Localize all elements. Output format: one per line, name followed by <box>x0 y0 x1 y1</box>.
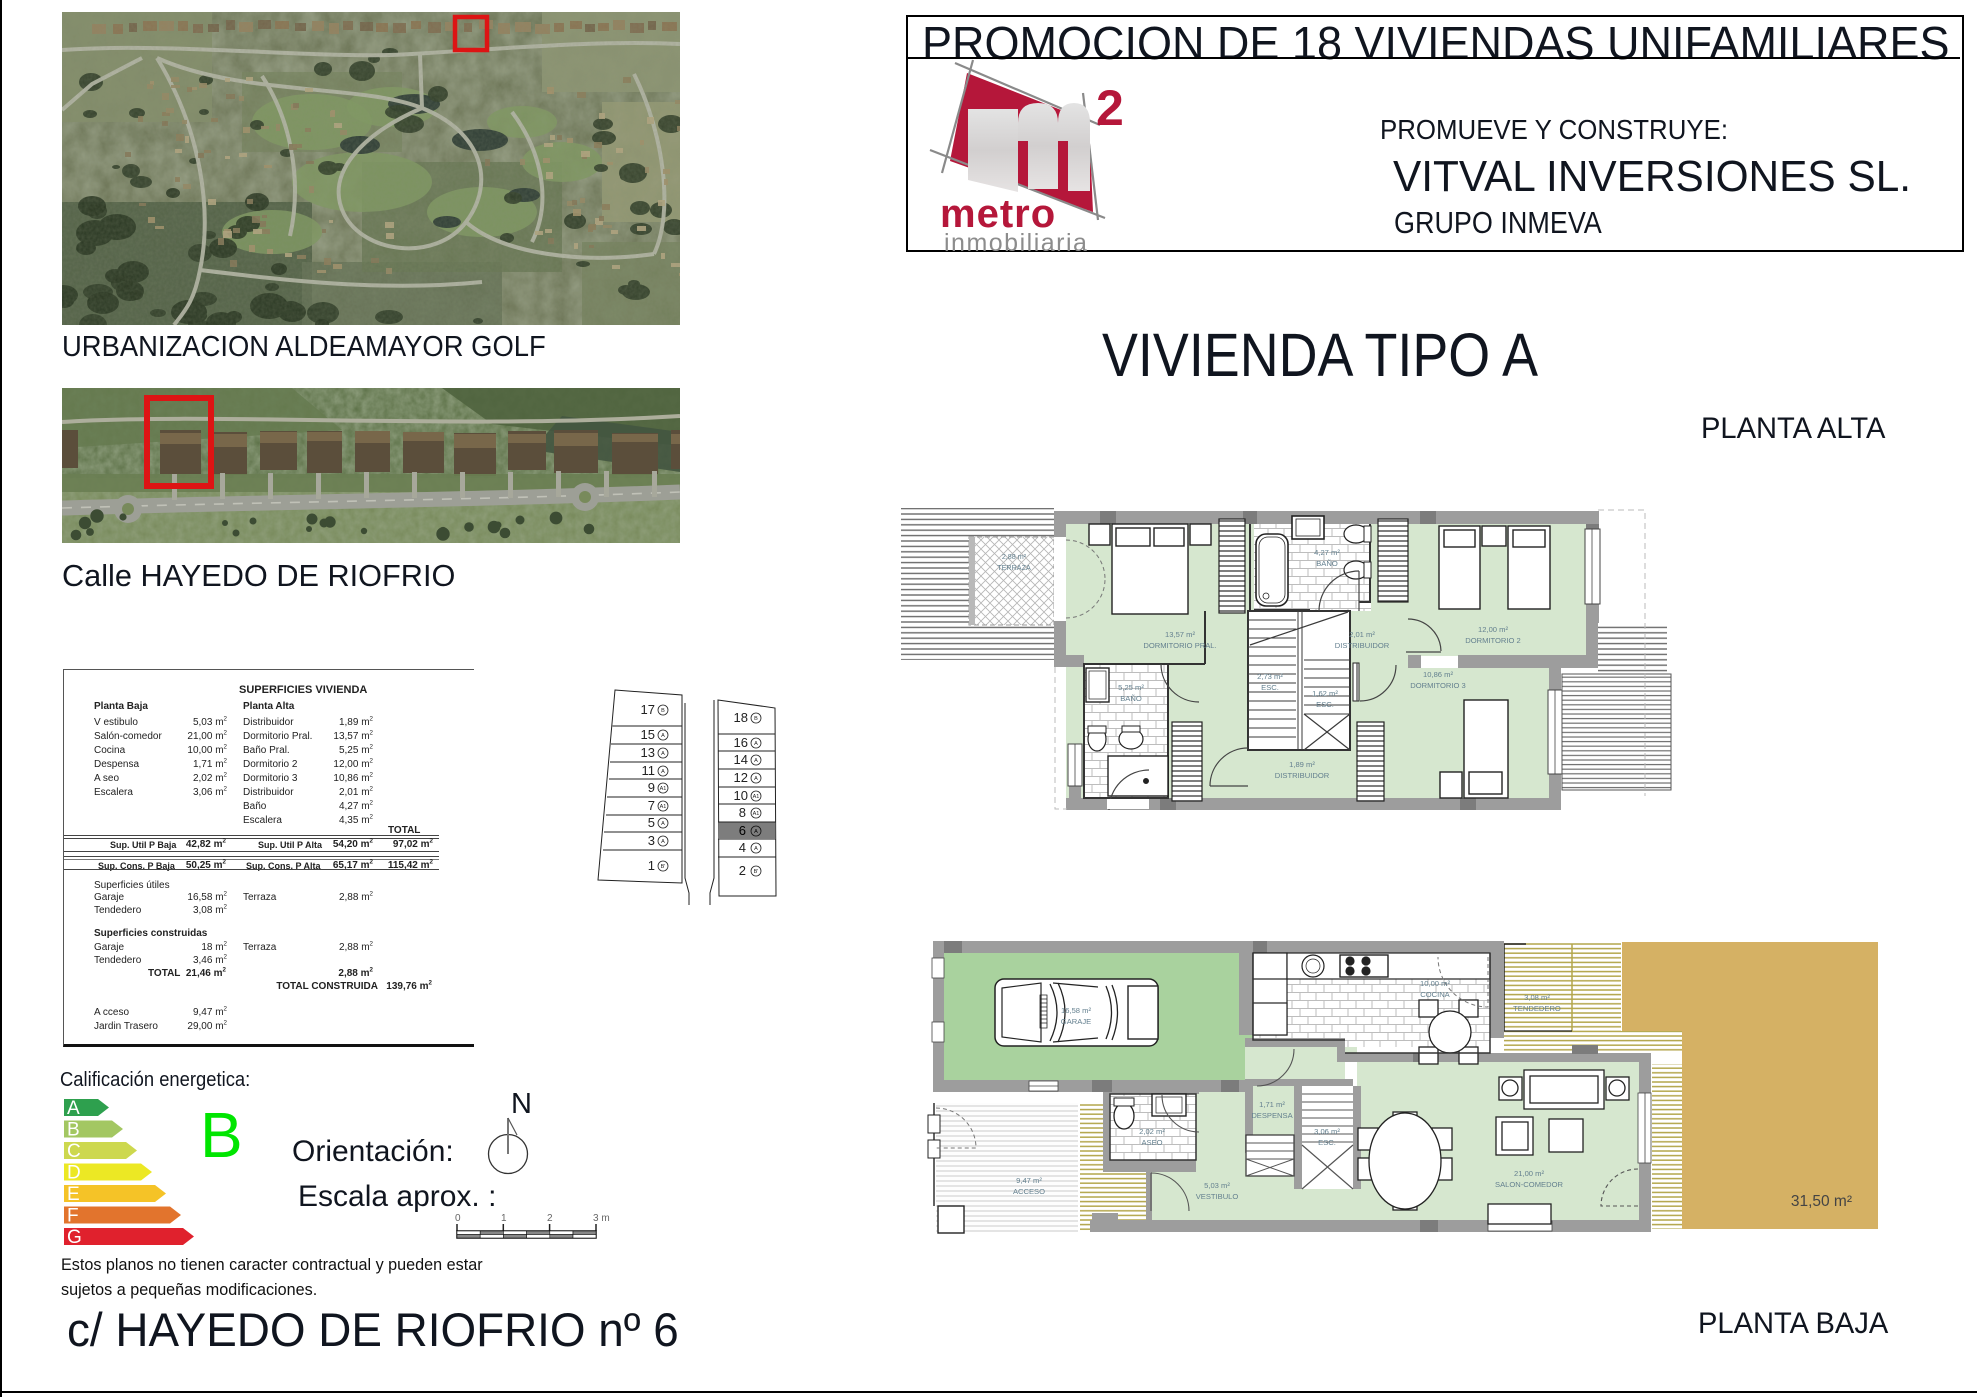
svg-text:VESTIBULO: VESTIBULO <box>1196 1192 1239 1201</box>
svg-text:8: 8 <box>739 805 746 820</box>
svg-text:10: 10 <box>734 788 748 803</box>
svg-text:A: A <box>661 751 665 757</box>
svg-text:16: 16 <box>734 735 748 750</box>
svg-text:12,00 m²: 12,00 m² <box>1478 625 1508 634</box>
svg-text:A: A <box>661 839 665 845</box>
svg-text:A1: A1 <box>753 794 760 800</box>
svg-text:5: 5 <box>648 815 655 830</box>
svg-text:B': B' <box>754 869 759 875</box>
svg-text:DESPENSA: DESPENSA <box>1251 1111 1293 1120</box>
svg-text:G: G <box>67 1227 82 1248</box>
svg-text:E: E <box>67 1184 80 1205</box>
svg-text:DORMITORIO 3: DORMITORIO 3 <box>1410 681 1466 690</box>
svg-text:3,06 m²: 3,06 m² <box>1314 1127 1340 1136</box>
svg-text:14: 14 <box>734 752 748 767</box>
svg-text:1,71 m²: 1,71 m² <box>1259 1100 1285 1109</box>
svg-text:1: 1 <box>648 858 655 873</box>
svg-text:2: 2 <box>1096 80 1124 136</box>
svg-text:21,00 m²: 21,00 m² <box>1514 1169 1544 1178</box>
svg-text:4: 4 <box>739 840 746 855</box>
svg-text:DISTRIBUIDOR: DISTRIBUIDOR <box>1275 771 1330 780</box>
svg-text:2: 2 <box>739 863 746 878</box>
svg-text:A: A <box>661 769 665 775</box>
svg-text:inmobiliaria: inmobiliaria <box>944 229 1088 255</box>
svg-text:B: B <box>67 1120 80 1141</box>
svg-text:A: A <box>754 741 758 747</box>
svg-text:A1: A1 <box>660 804 667 810</box>
svg-text:31,50 m²: 31,50 m² <box>1791 1193 1852 1210</box>
svg-text:12: 12 <box>734 770 748 785</box>
svg-text:0: 0 <box>455 1213 461 1224</box>
svg-text:2: 2 <box>547 1213 553 1224</box>
svg-text:10,86 m²: 10,86 m² <box>1423 670 1453 679</box>
svg-text:5,25 m²: 5,25 m² <box>1118 683 1144 692</box>
svg-text:TERRAZA: TERRAZA <box>997 563 1031 572</box>
svg-text:2,01 m²: 2,01 m² <box>1349 630 1375 639</box>
svg-text:A: A <box>661 821 665 827</box>
svg-text:4,27 m²: 4,27 m² <box>1314 548 1340 557</box>
svg-text:ESC.: ESC. <box>1316 700 1334 709</box>
svg-text:9: 9 <box>648 780 655 795</box>
svg-text:F: F <box>67 1206 79 1227</box>
svg-text:ESC.: ESC. <box>1318 1138 1336 1147</box>
svg-text:A1: A1 <box>660 786 667 792</box>
svg-text:16,58 m²: 16,58 m² <box>1061 1006 1091 1015</box>
svg-text:15: 15 <box>641 727 655 742</box>
svg-text:N: N <box>511 1088 532 1120</box>
svg-text:1: 1 <box>501 1213 507 1224</box>
svg-text:ACCESO: ACCESO <box>1013 1187 1045 1196</box>
svg-text:11: 11 <box>642 763 656 778</box>
svg-text:A: A <box>661 733 665 739</box>
svg-text:A1: A1 <box>753 811 760 817</box>
svg-text:A: A <box>67 1099 80 1119</box>
svg-text:B: B <box>754 716 758 722</box>
svg-text:A: A <box>754 829 758 835</box>
svg-text:A: A <box>754 846 758 852</box>
svg-text:A: A <box>754 758 758 764</box>
svg-text:DORMITORIO 2: DORMITORIO 2 <box>1465 636 1521 645</box>
svg-text:2,88 m²: 2,88 m² <box>1002 552 1027 561</box>
svg-text:5,03 m²: 5,03 m² <box>1204 1181 1230 1190</box>
svg-text:TENDEDERO: TENDEDERO <box>1513 1004 1561 1013</box>
svg-text:3,08 m²: 3,08 m² <box>1524 993 1550 1002</box>
svg-text:6: 6 <box>739 823 746 838</box>
svg-text:10,00 m²: 10,00 m² <box>1420 979 1450 988</box>
svg-text:ESC.: ESC. <box>1261 683 1279 692</box>
svg-text:SALON-COMEDOR: SALON-COMEDOR <box>1495 1180 1563 1189</box>
svg-text:1,62 m²: 1,62 m² <box>1312 689 1338 698</box>
svg-text:3 m: 3 m <box>593 1213 610 1224</box>
svg-text:COCINA: COCINA <box>1420 990 1450 999</box>
svg-text:17: 17 <box>641 702 655 717</box>
svg-text:GARAJE: GARAJE <box>1061 1017 1091 1026</box>
svg-text:13: 13 <box>641 745 655 760</box>
svg-text:DORMITORIO PRAL.: DORMITORIO PRAL. <box>1143 641 1216 650</box>
svg-text:B': B' <box>661 864 666 870</box>
svg-text:2,73 m²: 2,73 m² <box>1257 672 1283 681</box>
svg-text:BAÑO: BAÑO <box>1316 559 1338 568</box>
svg-text:7: 7 <box>648 798 655 813</box>
svg-text:13,57 m²: 13,57 m² <box>1165 630 1195 639</box>
svg-text:9,47 m²: 9,47 m² <box>1016 1176 1042 1185</box>
svg-text:3: 3 <box>648 833 655 848</box>
svg-text:18: 18 <box>734 710 748 725</box>
svg-text:DISTRIBUIDOR: DISTRIBUIDOR <box>1335 641 1390 650</box>
svg-text:ASEO: ASEO <box>1141 1138 1162 1147</box>
svg-text:A: A <box>754 776 758 782</box>
svg-text:BAÑO: BAÑO <box>1120 694 1142 703</box>
svg-text:2,02 m²: 2,02 m² <box>1139 1127 1165 1136</box>
svg-text:D: D <box>67 1163 81 1184</box>
svg-text:1,89 m²: 1,89 m² <box>1289 760 1315 769</box>
svg-text:B: B <box>661 708 665 714</box>
svg-text:C: C <box>67 1141 81 1162</box>
